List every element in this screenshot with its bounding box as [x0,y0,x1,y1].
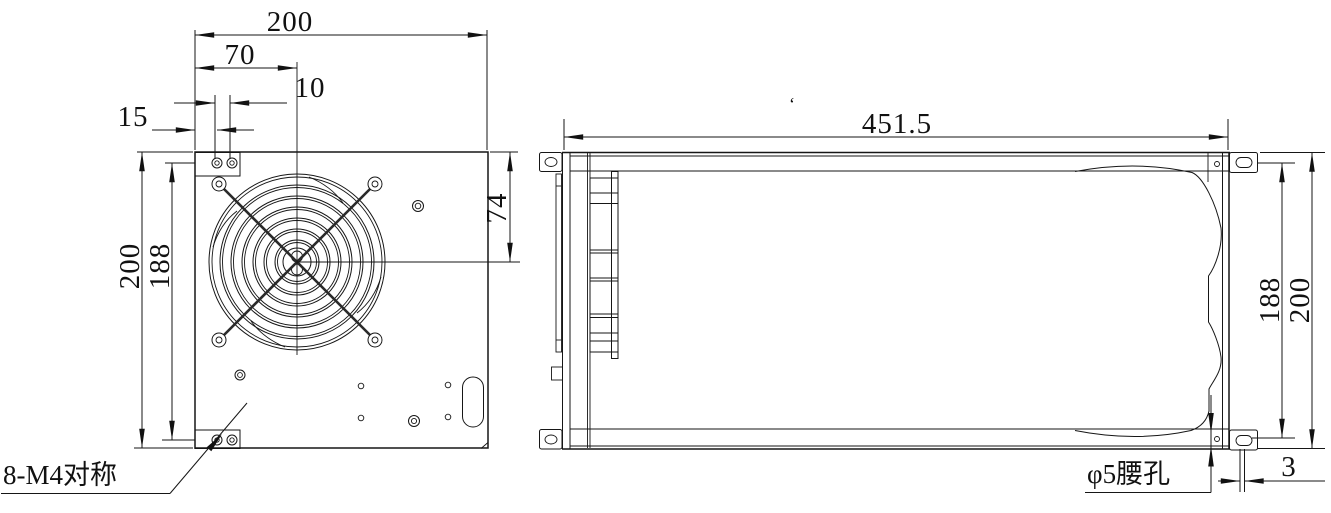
label-slot: φ5腰孔 [1087,459,1170,489]
dim-front-hole-span: 188 [144,243,176,290]
dim-front-edge-to-hole: 15 [118,101,149,133]
flange-bottom-right [1230,430,1258,450]
dim-side-slot-offset: 3 [1281,451,1297,483]
flange-top-left [540,153,563,172]
side-view-dimensions: 451.5 ‘ 188 200 φ5腰孔 3 [564,94,1325,493]
side-view [540,152,1258,450]
dim-front-total-width: 200 [267,6,314,38]
dim-front-total-height: 200 [114,243,146,290]
rivet-hole [1215,162,1220,167]
drawing-canvas: 200 70 10 15 200 188 74 [0,0,1331,513]
cable-slot [463,377,484,427]
guard-edge [556,174,562,352]
stray-mark: ‘ [789,94,795,114]
dim-front-fan-center: 74 [481,193,513,224]
front-view [195,62,520,449]
fan-body [590,178,618,352]
side-tab [552,367,563,380]
cover-break-line [1075,166,1221,437]
bracket-top-left [195,153,240,177]
fan-side-profile [552,153,619,448]
label-mounting-holes: 8-M4对称 [3,460,117,490]
leader-slot-label: φ5腰孔 [1085,395,1214,493]
rivet-hole [1215,437,1220,442]
front-view-dimensions: 200 70 10 15 200 188 74 [1,6,518,494]
dim-front-center-offset: 70 [225,39,256,71]
technical-drawing: 200 70 10 15 200 188 74 [0,0,1331,513]
dim-front-hole-pitch: 10 [295,72,326,104]
flange-top-right [1230,153,1258,173]
panel-holes [235,201,484,428]
dim-side-total-length: 451.5 [862,108,932,140]
flange-bottom-left [540,430,563,450]
dim-side-total-height: 200 [1284,277,1316,324]
leader-mounting-holes: 8-M4对称 [1,403,247,494]
dim-side-hole-span: 188 [1254,277,1286,324]
